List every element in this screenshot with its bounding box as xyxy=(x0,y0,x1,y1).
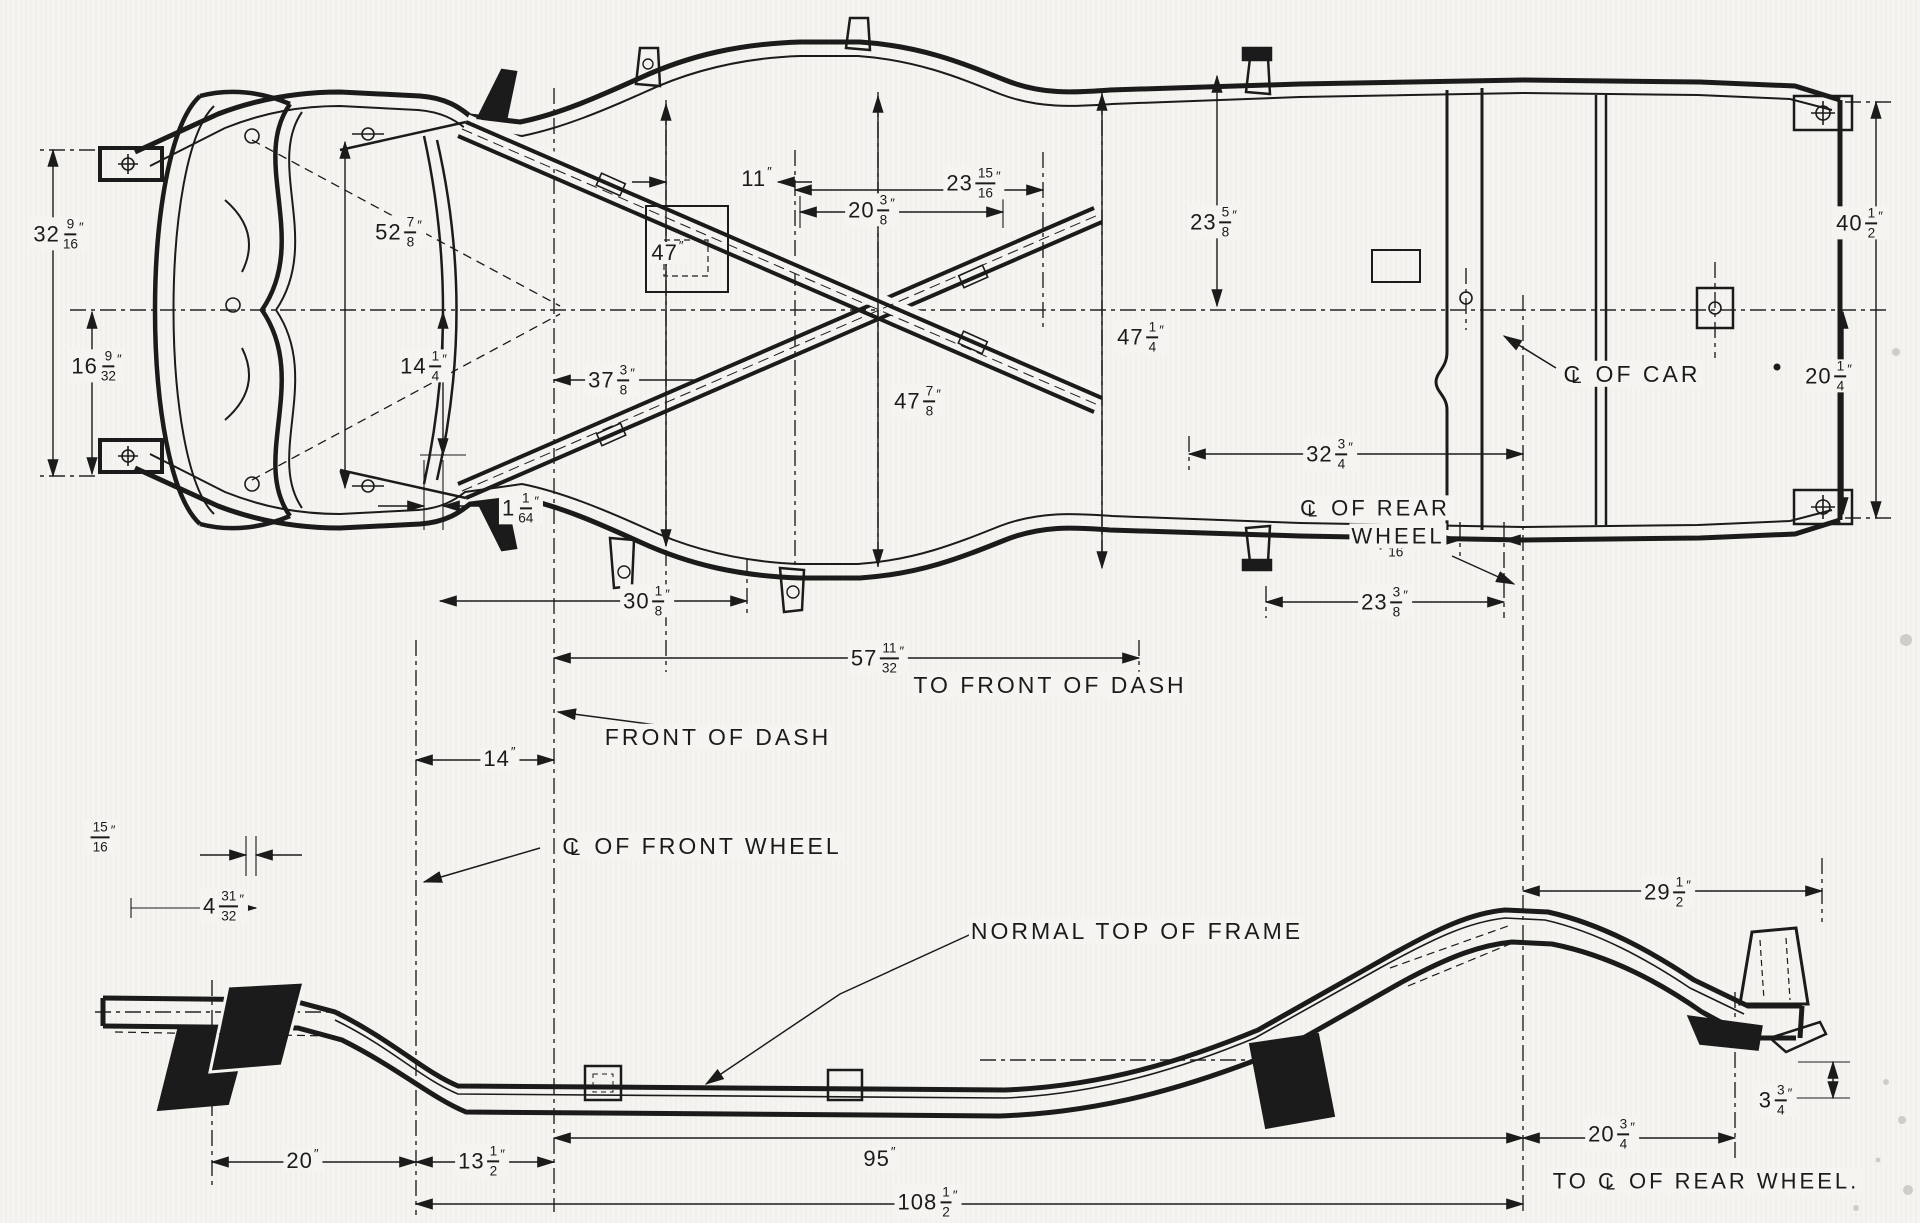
blueprint-sheet: 32916″16932″5278″47″11″2038″231516″2358″… xyxy=(0,0,1920,1223)
reference-centerlines xyxy=(40,88,1892,1215)
leader-lines xyxy=(424,336,1556,1084)
plan-view-linework xyxy=(100,18,1852,612)
chassis-drawing-canvas xyxy=(0,0,1920,1223)
